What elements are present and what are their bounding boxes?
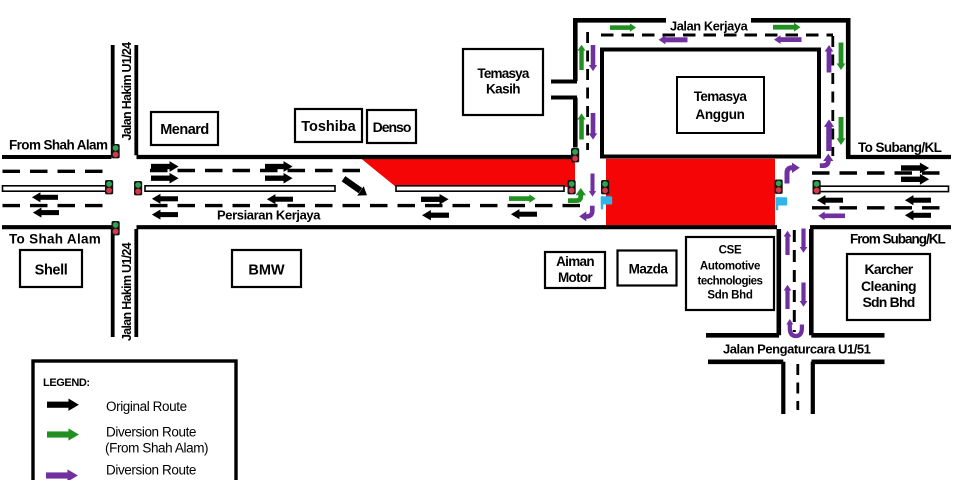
svg-text:Cleaning: Cleaning bbox=[861, 278, 916, 294]
svg-text:Karcher: Karcher bbox=[864, 261, 913, 277]
svg-text:From Subang/KL: From Subang/KL bbox=[850, 232, 945, 247]
svg-text:Denso: Denso bbox=[373, 119, 411, 135]
svg-text:technologies: technologies bbox=[698, 276, 763, 288]
svg-text:BMW: BMW bbox=[248, 263, 285, 279]
svg-text:Diversion Route: Diversion Route bbox=[106, 425, 196, 440]
svg-text:Sdn Bhd: Sdn Bhd bbox=[863, 294, 915, 310]
svg-text:Automotive: Automotive bbox=[700, 261, 760, 273]
svg-text:Toshiba: Toshiba bbox=[301, 119, 356, 135]
svg-text:Temasya: Temasya bbox=[477, 66, 529, 81]
svg-text:Jalan Hakim U1/24: Jalan Hakim U1/24 bbox=[120, 242, 134, 341]
svg-text:CSE: CSE bbox=[719, 245, 742, 257]
svg-text:To Subang/KL: To Subang/KL bbox=[858, 140, 942, 155]
svg-text:From Shah Alam: From Shah Alam bbox=[9, 138, 108, 153]
svg-text:Menard: Menard bbox=[160, 122, 209, 138]
svg-text:Sdn Bhd: Sdn Bhd bbox=[707, 290, 752, 302]
svg-text:Persiaran Kerjaya: Persiaran Kerjaya bbox=[217, 208, 321, 223]
svg-text:Jalan Pengaturcara U1/51: Jalan Pengaturcara U1/51 bbox=[723, 342, 871, 357]
svg-text:To Shah Alam: To Shah Alam bbox=[9, 232, 101, 247]
svg-text:Temasya: Temasya bbox=[694, 89, 748, 104]
svg-text:Shell: Shell bbox=[35, 263, 68, 279]
svg-text:Jalan Hakim U1/24: Jalan Hakim U1/24 bbox=[120, 42, 134, 141]
svg-text:Kasih: Kasih bbox=[486, 82, 520, 97]
svg-text:Motor: Motor bbox=[558, 270, 593, 285]
svg-text:Mazda: Mazda bbox=[629, 262, 669, 277]
svg-text:LEGEND:: LEGEND: bbox=[43, 377, 90, 389]
svg-text:Aiman: Aiman bbox=[556, 254, 594, 269]
svg-text:Diversion Route: Diversion Route bbox=[106, 463, 196, 478]
svg-text:Original Route: Original Route bbox=[106, 399, 187, 414]
svg-text:Anggun: Anggun bbox=[695, 107, 744, 122]
svg-text:(From Shah Alam): (From Shah Alam) bbox=[105, 441, 208, 456]
svg-text:Jalan Kerjaya: Jalan Kerjaya bbox=[670, 19, 749, 34]
